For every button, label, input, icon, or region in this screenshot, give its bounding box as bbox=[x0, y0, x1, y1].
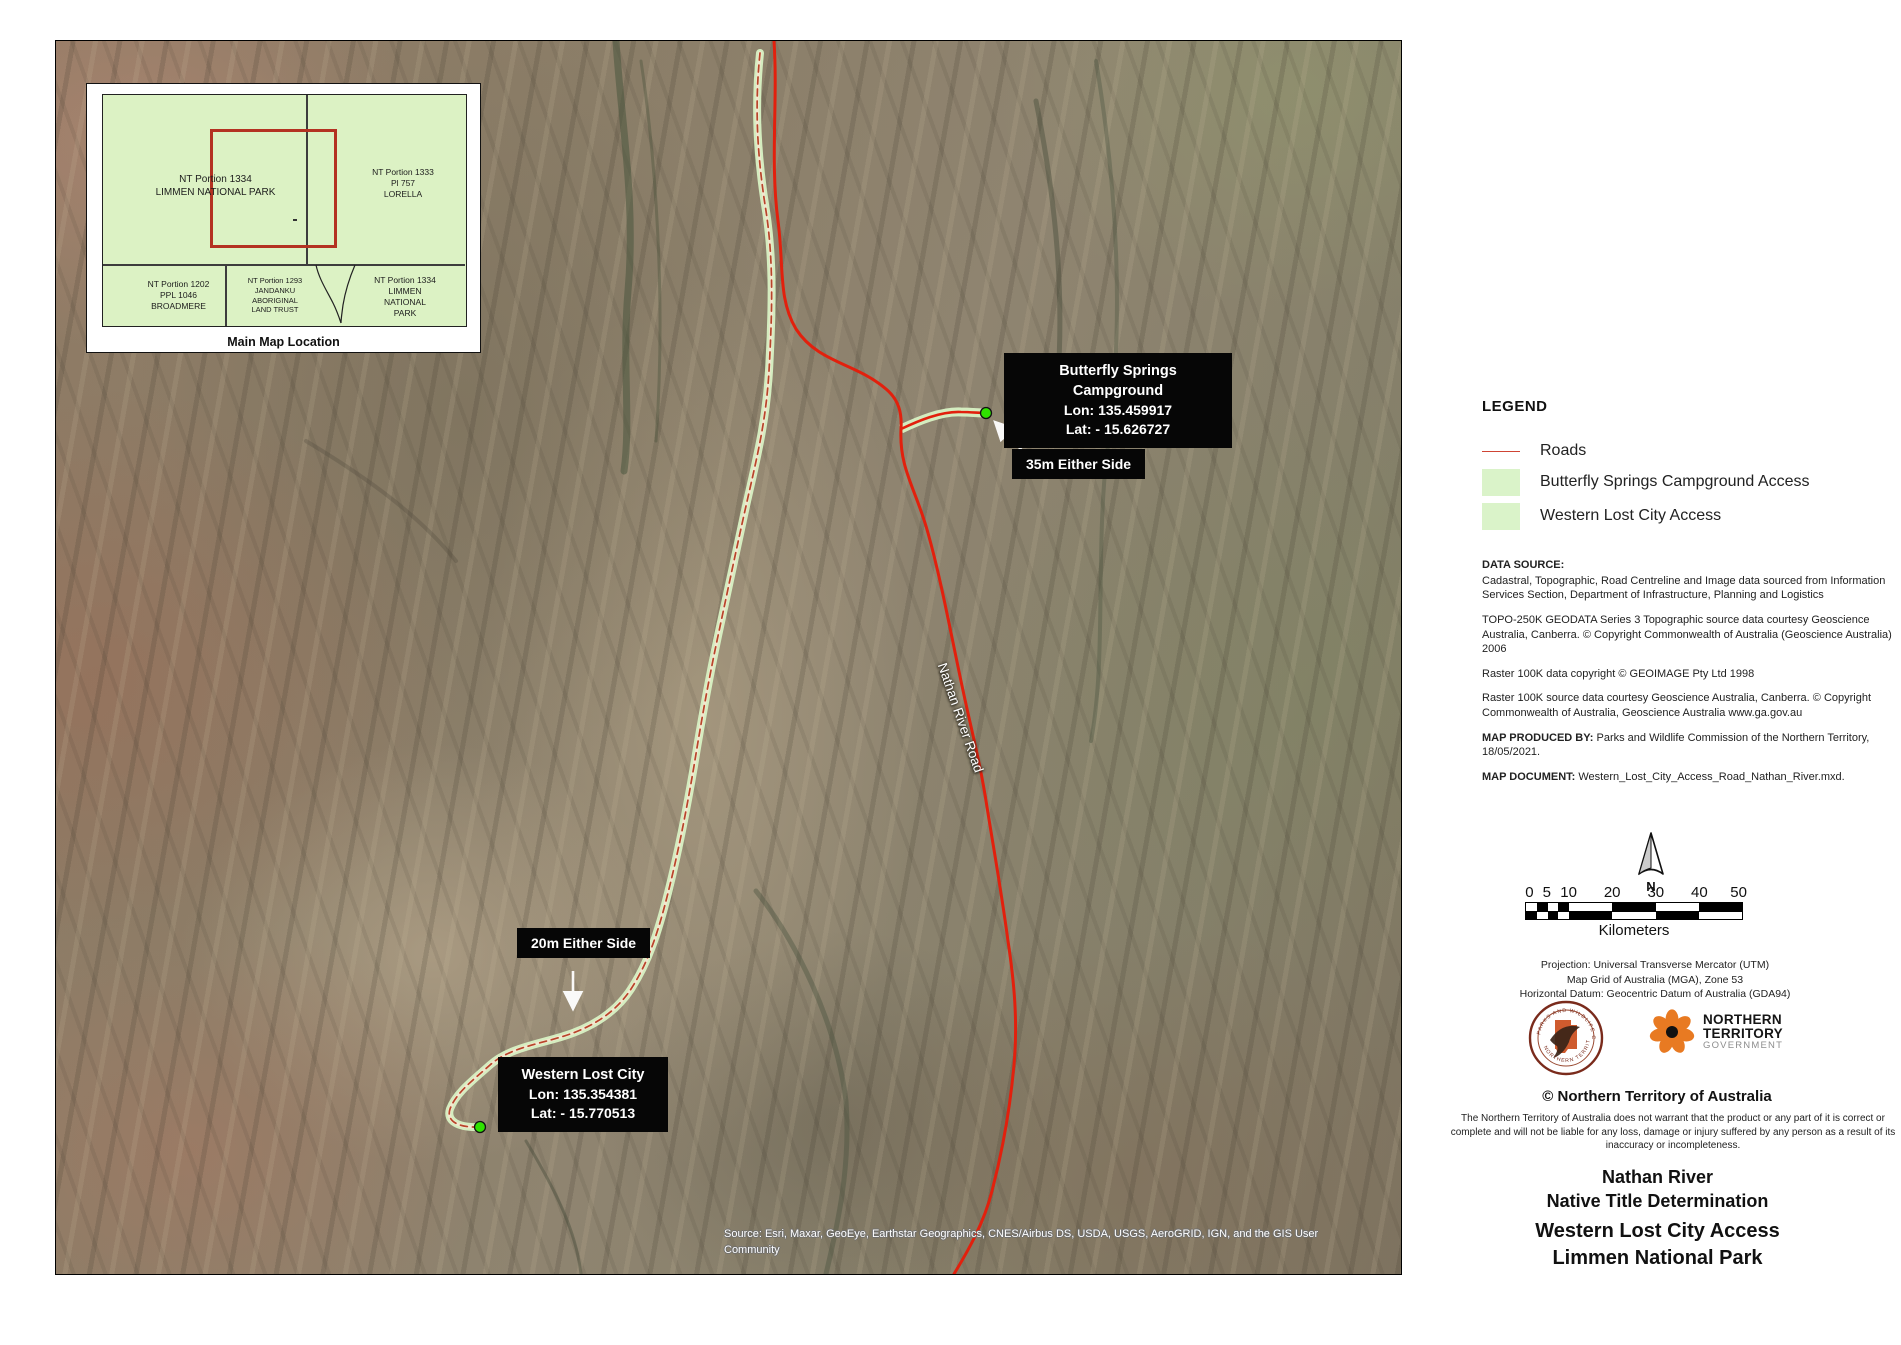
buffer-20m-label: 20m Either Side bbox=[517, 928, 650, 958]
data-source-paragraph: TOPO-250K GEODATA Series 3 Topographic s… bbox=[1482, 613, 1892, 657]
map-document: MAP DOCUMENT: Western_Lost_City_Access_R… bbox=[1482, 770, 1892, 785]
disclaimer-text: The Northern Territory of Australia does… bbox=[1447, 1112, 1899, 1153]
imagery-attribution: Source: Esri, Maxar, GeoEye, Earthstar G… bbox=[724, 1227, 1364, 1259]
inset-parcel-label: NT Portion 1334 LIMMEN NATIONAL PARK bbox=[350, 275, 460, 319]
nt-flower-icon bbox=[1648, 1008, 1696, 1056]
tick-label: 0 bbox=[1525, 884, 1533, 901]
map-document-label: MAP DOCUMENT: bbox=[1482, 771, 1575, 783]
data-source-block: DATA SOURCE: Cadastral, Topographic, Roa… bbox=[1482, 558, 1892, 795]
map-produced-by: MAP PRODUCED BY: Parks and Wildlife Comm… bbox=[1482, 731, 1892, 760]
scale-bar-ticks: 0 5 10 20 30 40 50 bbox=[1525, 884, 1743, 901]
title-line: Native Title Determination bbox=[1460, 1189, 1855, 1213]
logo-row: PARKS AND WILDLIFE COMMISSION NORTHERN T… bbox=[1528, 1000, 1858, 1080]
ntgov-word: NORTHERN bbox=[1703, 1013, 1783, 1027]
projection-block: Projection: Universal Transverse Mercato… bbox=[1455, 958, 1855, 1002]
ntgov-word: TERRITORY bbox=[1703, 1027, 1783, 1041]
north-arrow-icon bbox=[1630, 830, 1672, 878]
inset-map-area: NT Portion 1334 LIMMEN NATIONAL PARK NT … bbox=[102, 94, 467, 327]
western-lost-city-callout: Western Lost City Lon: 135.354381 Lat: -… bbox=[498, 1057, 668, 1132]
tick-label: 50 bbox=[1730, 884, 1747, 901]
inset-parcel-label: NT Portion 1334 LIMMEN NATIONAL PARK bbox=[123, 173, 308, 199]
butterfly-springs-callout: Butterfly Springs Campground Lon: 135.45… bbox=[1004, 353, 1232, 448]
inset-parcel-label: NT Portion 1293 JANDANKU ABORIGINAL LAND… bbox=[229, 276, 321, 315]
callout-lat: Lat: - 15.626727 bbox=[1016, 420, 1220, 439]
legend-item-butterfly-access: Butterfly Springs Campground Access bbox=[1482, 468, 1809, 496]
legend-title: LEGEND bbox=[1482, 398, 1548, 415]
nt-government-logo: NORTHERN TERRITORY GOVERNMENT bbox=[1648, 1008, 1783, 1056]
title-line: Limmen National Park bbox=[1460, 1245, 1855, 1272]
nathan-river-road bbox=[774, 41, 1016, 1274]
road-line-swatch bbox=[1482, 451, 1520, 452]
callout-lon: Lon: 135.459917 bbox=[1016, 401, 1220, 420]
map-produced-by-label: MAP PRODUCED BY: bbox=[1482, 732, 1593, 744]
projection-line: Projection: Universal Transverse Mercato… bbox=[1455, 958, 1855, 973]
data-source-paragraph: Raster 100K source data courtesy Geoscie… bbox=[1482, 691, 1892, 720]
tick-label: 5 bbox=[1543, 884, 1551, 901]
data-source-paragraph: Raster 100K data copyright © GEOIMAGE Pt… bbox=[1482, 667, 1892, 682]
tick-label: 40 bbox=[1691, 884, 1708, 901]
tick-label: 20 bbox=[1604, 884, 1621, 901]
scale-bar-graphic bbox=[1525, 902, 1743, 920]
green-fill-swatch bbox=[1482, 503, 1520, 530]
callout-title: Butterfly Springs Campground bbox=[1016, 361, 1220, 401]
callout-lat: Lat: - 15.770513 bbox=[510, 1104, 656, 1123]
ntgov-word: GOVERNMENT bbox=[1703, 1041, 1783, 1051]
legend-item-western-access: Western Lost City Access bbox=[1482, 502, 1721, 530]
western-access-road bbox=[449, 53, 771, 1127]
copyright-line: © Northern Territory of Australia bbox=[1457, 1088, 1857, 1105]
western-lost-city-point bbox=[475, 1122, 486, 1133]
scale-bar: 0 5 10 20 30 40 50 Kilometers bbox=[1525, 884, 1743, 939]
buffer-35m-label: 35m Either Side bbox=[1012, 449, 1145, 479]
inset-parcel-label: NT Portion 1333 Pl 757 LORELLA bbox=[343, 167, 463, 200]
tick-label: 10 bbox=[1560, 884, 1577, 901]
inset-parcel-label: NT Portion 1202 PPL 1046 BROADMERE bbox=[111, 279, 246, 312]
inset-locator-map: NT Portion 1334 LIMMEN NATIONAL PARK NT … bbox=[86, 83, 481, 353]
scale-bar-unit: Kilometers bbox=[1525, 922, 1743, 939]
main-map: Butterfly Springs Campground Lon: 135.45… bbox=[55, 40, 1402, 1275]
title-line: Western Lost City Access bbox=[1460, 1218, 1855, 1245]
data-source-paragraph: Cadastral, Topographic, Road Centreline … bbox=[1482, 574, 1892, 603]
butterfly-springs-point bbox=[981, 408, 992, 419]
map-title-primary: Nathan River Native Title Determination bbox=[1460, 1165, 1855, 1214]
legend-item-label: Roads bbox=[1540, 442, 1586, 460]
tick-label: 30 bbox=[1647, 884, 1664, 901]
callout-lon: Lon: 135.354381 bbox=[510, 1085, 656, 1104]
inset-caption: Main Map Location bbox=[87, 335, 480, 349]
map-document-text: Western_Lost_City_Access_Road_Nathan_Riv… bbox=[1575, 771, 1844, 783]
green-fill-swatch bbox=[1482, 469, 1520, 496]
inset-road-mark bbox=[293, 219, 297, 221]
legend-item-label: Butterfly Springs Campground Access bbox=[1540, 473, 1809, 491]
map-title-secondary: Western Lost City Access Limmen National… bbox=[1460, 1218, 1855, 1272]
callout-title: Western Lost City bbox=[510, 1065, 656, 1085]
data-source-heading: DATA SOURCE: bbox=[1482, 558, 1892, 573]
legend-item-roads: Roads bbox=[1482, 437, 1586, 465]
projection-line: Map Grid of Australia (MGA), Zone 53 bbox=[1455, 973, 1855, 988]
legend-item-label: Western Lost City Access bbox=[1540, 507, 1721, 525]
title-line: Nathan River bbox=[1460, 1165, 1855, 1189]
parks-wildlife-commission-logo: PARKS AND WILDLIFE COMMISSION NORTHERN T… bbox=[1528, 1000, 1604, 1076]
